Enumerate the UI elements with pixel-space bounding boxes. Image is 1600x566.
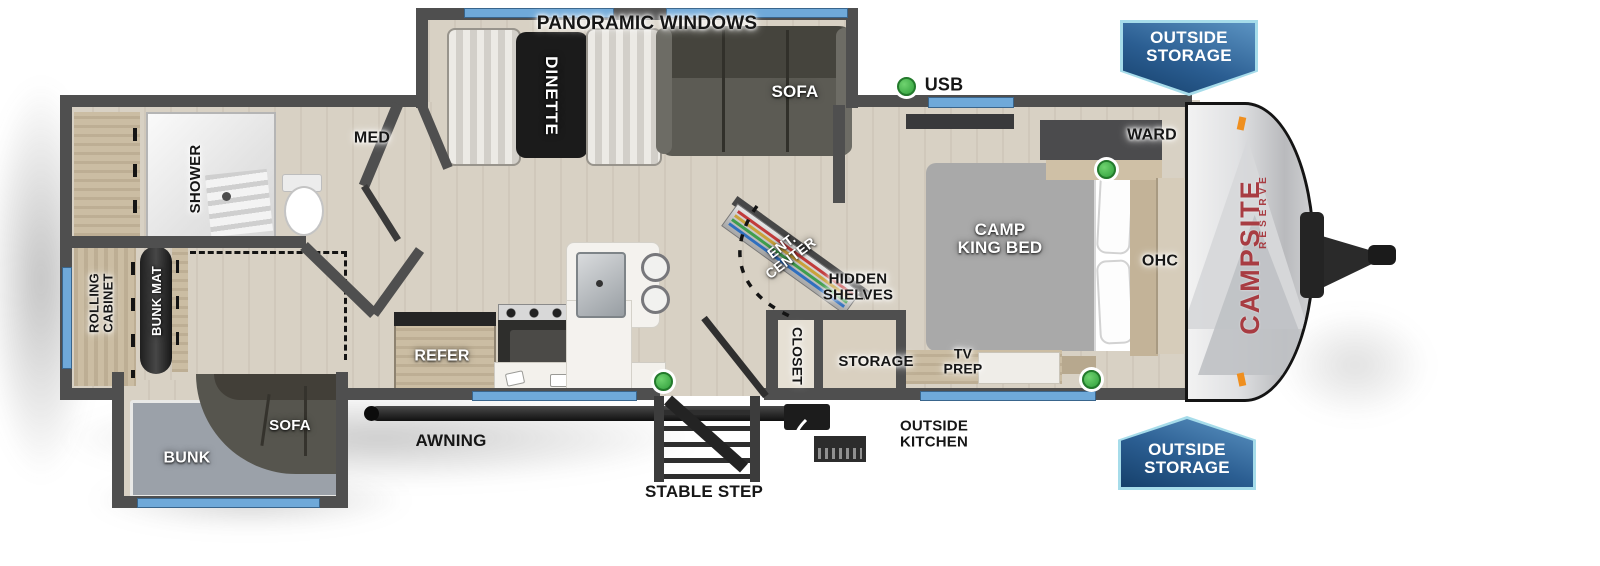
outside-storage-top-line2: STORAGE [1146,46,1232,65]
sink-drain [596,280,603,287]
bathroom-bottom-wall [60,236,306,248]
step-rung-2 [664,426,750,431]
hitch-a-frame [1322,236,1376,288]
label-hidden-shelves-line2: SHELVES [823,287,893,303]
label-outside-kitchen: OUTSIDE KITCHEN [900,418,968,450]
usb-indicator-dot-bed-bottom [1082,370,1101,389]
dinette-bench-left [447,28,521,166]
bottom-wall-left [60,388,114,400]
slide-bottom-right-wall [336,372,348,508]
outside-storage-bottom-line1: OUTSIDE [1148,440,1226,459]
slide-bottom-window [137,498,320,508]
label-hidden-shelves: HIDDEN SHELVES [823,271,893,303]
closet-top-wall [766,310,906,320]
outside-storage-top-line1: OUTSIDE [1150,28,1228,47]
bunk-mat-area-dashed-outline [190,251,347,360]
label-sofa-slide: SOFA [269,418,311,434]
refrigerator-top [394,312,496,326]
slide-sofa-back [214,374,338,400]
label-stable-step: STABLE STEP [645,483,763,501]
bedroom-top-window [928,97,1014,108]
outside-kitchen-griddle-ribs [818,448,862,459]
bedroom-window-valance [906,114,1014,129]
label-ward: WARD [1127,128,1177,145]
propane-cover [1300,212,1324,298]
label-shower: SHOWER [188,145,204,214]
sofa-main-armrest-left [656,28,672,154]
toilet-bowl [284,186,324,236]
dinette-bench-right [586,28,662,166]
rolling-cabinet-handles [131,262,135,378]
label-usb: USB [925,76,964,95]
label-tv-prep: TV PREP [944,346,983,375]
step-rung-1 [664,410,750,415]
outside-storage-badge-bottom-text: OUTSIDE STORAGE [1118,441,1256,478]
bath-wardrobe-cabinet [74,112,140,236]
label-closet: CLOSET [790,327,805,385]
bed-pillow-1 [1096,171,1134,255]
usb-indicator-dot-kitchen [654,372,673,391]
bed-pillow-2 [1096,259,1134,345]
label-bunk: BUNK [163,451,210,468]
closet-left-wall [766,310,778,400]
awning-bar-endcap [364,406,379,421]
top-wall-right [856,95,1192,107]
tv-prep-counter [978,352,1060,384]
rv-floorplan-diagram: RESERVE CAMPSITE PANORAMIC WINDOWS DINET… [0,0,1600,566]
label-tv-prep-line2: PREP [944,361,983,376]
label-rolling-cabinet-line1: ROLLING [87,273,101,333]
slide-top-right-wall [846,8,858,108]
label-panoramic-windows: PANORAMIC WINDOWS [537,14,757,34]
bedroom-bottom-window [920,391,1096,401]
rear-window [62,267,72,369]
usb-indicator-dot-legend [897,77,916,96]
bedroom-left-wall [833,105,845,203]
front-cap: RESERVE CAMPSITE [1185,102,1315,402]
outside-storage-badge-top-text: OUTSIDE STORAGE [1120,29,1258,66]
label-camp-king-bed-line2: KING BED [958,239,1043,257]
outside-storage-badge-top: OUTSIDE STORAGE [1120,20,1258,96]
step-rail-right [750,396,760,482]
label-rolling-cabinet-line2: CABINET [101,273,115,333]
label-storage: STORAGE [838,354,913,370]
label-bunk-mat: BUNK MAT [150,266,164,336]
side-cabinet-handles [176,260,179,362]
step-rail-left [654,396,664,482]
closet-right-wall [814,318,823,398]
island-stool-2 [641,285,670,314]
brand-campsite-text: CAMPSITE [1236,179,1264,335]
kitchen-bottom-window [472,391,637,401]
label-outside-kitchen-line1: OUTSIDE [900,418,968,434]
label-tv-prep-line1: TV [944,346,983,361]
usb-indicator-dot-bed-top [1097,160,1116,179]
step-rung-3 [664,442,750,447]
top-wall-left [60,95,420,107]
side-cabinet-strip [172,248,188,372]
label-ohc: OHC [1142,254,1178,271]
label-rolling-cabinet: ROLLING CABINET [87,273,114,333]
outside-storage-badge-bottom: OUTSIDE STORAGE [1118,416,1256,490]
island-stool-1 [641,253,670,282]
label-awning: AWNING [415,432,486,450]
slide-bottom-left-wall [112,372,124,508]
step-rung-4 [664,458,750,463]
outside-storage-bottom-line2: STORAGE [1144,458,1230,477]
label-camp-king-bed-line1: CAMP [958,221,1043,239]
label-sofa-main: SOFA [771,83,818,101]
outside-kitchen-box [784,404,830,430]
shower-bench-stripes [205,169,273,237]
label-outside-kitchen-line2: KITCHEN [900,434,968,450]
hitch-coupler [1368,245,1396,265]
label-hidden-shelves-line1: HIDDEN [823,271,893,287]
shower-drain [222,192,231,201]
cap-marker-light-top [1237,116,1247,130]
label-refer: REFER [414,349,469,366]
label-camp-king-bed: CAMP KING BED [958,221,1043,257]
bath-cabinet-handles [133,128,137,228]
sofa-main-seam-1 [722,30,725,152]
step-rung-5 [664,474,750,479]
label-dinette: DINETTE [542,56,560,136]
slide-top-left-wall [416,8,428,108]
label-med: MED [354,131,390,148]
